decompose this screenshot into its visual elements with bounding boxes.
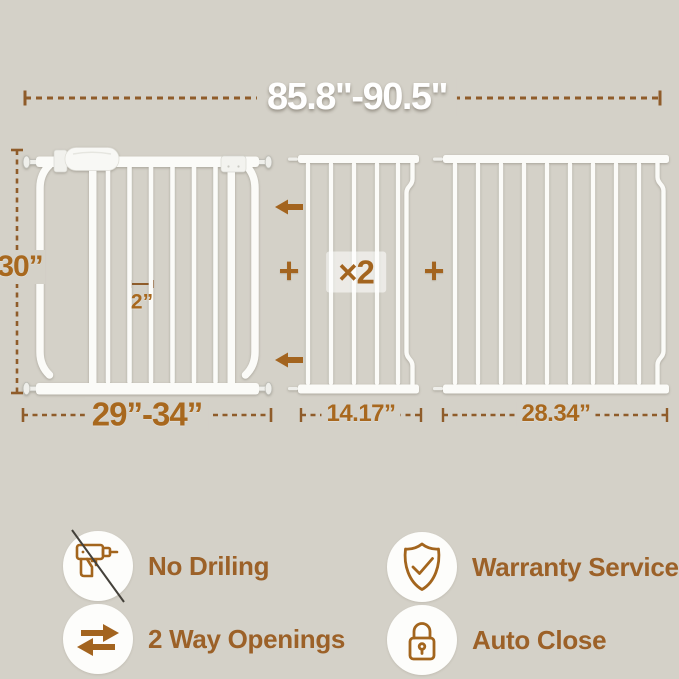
gate-latch bbox=[221, 156, 246, 172]
product-infographic: 85.8"-90.5" 30” 2” 29”-34” 14.17” 28.34”… bbox=[0, 0, 679, 679]
feature-no-drilling: No Driling bbox=[63, 531, 269, 601]
top-width-range-label: 85.8"-90.5" bbox=[257, 78, 457, 116]
gate-graphic bbox=[23, 148, 272, 395]
gate-height-label: 30” bbox=[0, 250, 46, 284]
left-arrow-icon bbox=[275, 353, 303, 368]
gate-diagram-graphic bbox=[0, 0, 679, 460]
no-drill-icon bbox=[63, 531, 133, 601]
plus-sign: + bbox=[278, 253, 299, 289]
gate-bars bbox=[106, 163, 218, 384]
gate-width-range-label: 29”-34” bbox=[85, 398, 209, 431]
gate-handle bbox=[65, 148, 119, 171]
large-extension-panel-graphic bbox=[433, 155, 669, 394]
feature-label: 2 Way Openings bbox=[148, 626, 345, 652]
feature-two-way-openings: 2 Way Openings bbox=[63, 604, 345, 674]
two-way-arrows-icon bbox=[63, 604, 133, 674]
feature-label: Auto Close bbox=[472, 627, 606, 653]
bar-gap-label: 2” bbox=[131, 292, 153, 313]
lock-icon bbox=[387, 605, 457, 675]
feature-label: No Driling bbox=[148, 553, 269, 579]
feature-icon-circle bbox=[387, 605, 457, 675]
large-panel-width-label: 28.34” bbox=[516, 402, 595, 426]
plus-sign: + bbox=[423, 253, 444, 289]
left-arrow-icon bbox=[275, 200, 303, 215]
multiplier-badge: ×2 bbox=[326, 252, 386, 293]
feature-warranty-service: Warranty Service bbox=[387, 532, 679, 602]
feature-icon-circle bbox=[63, 604, 133, 674]
feature-auto-close: Auto Close bbox=[387, 605, 606, 675]
feature-icon-circle bbox=[387, 532, 457, 602]
feature-icon-circle bbox=[63, 531, 133, 601]
shield-check-icon bbox=[387, 532, 457, 602]
small-panel-width-label: 14.17” bbox=[321, 402, 400, 426]
feature-label: Warranty Service bbox=[472, 554, 679, 580]
